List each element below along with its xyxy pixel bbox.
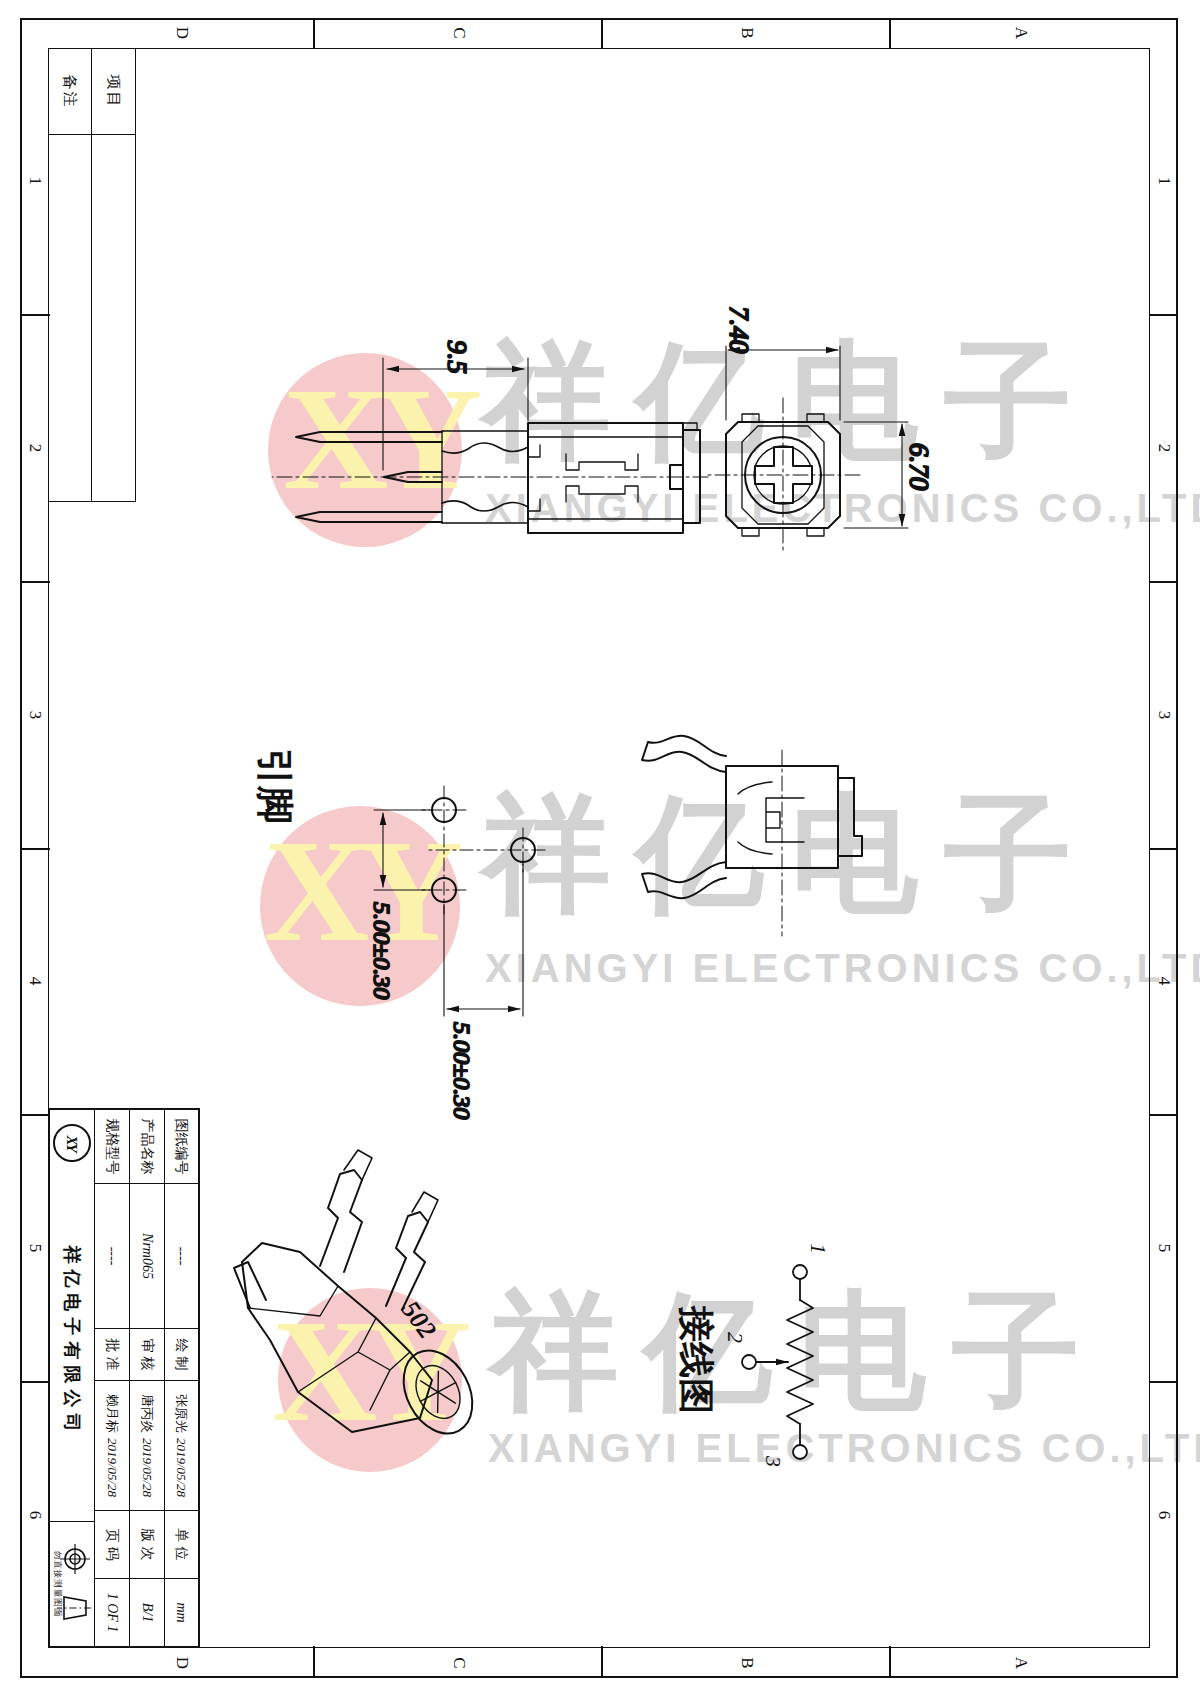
centerline <box>422 786 545 914</box>
drawing-canvas: 7.40 6.70 <box>0 0 1200 1697</box>
dim-pin-pitch-h: 5.00±0.30 <box>369 902 395 999</box>
terminal-3-label: 3 <box>761 1455 786 1467</box>
drawing-sheet-page: XY 祥亿电子 XIANGYI ELECTRONICS CO.,LTD XY 祥… <box>0 0 1200 1697</box>
side-view-drawing <box>642 736 862 936</box>
terminal-2-label: 2 <box>723 1332 748 1343</box>
dim-front-height: 9.5 <box>442 340 472 374</box>
iso-view-drawing: 502 <box>234 1150 486 1445</box>
dim-top-width: 6.70 <box>904 443 934 491</box>
wiring-diagram: 1 2 3 接线图 <box>676 1243 831 1467</box>
rotated-landscape-sheet: 1 2 3 4 5 6 1 2 3 4 5 6 A B C D A B C D … <box>0 0 1200 1697</box>
pin-layout-drawing: 5.00±0.30 5.00±0.30 引脚 <box>254 748 545 1119</box>
terminal-1-label: 1 <box>806 1243 831 1254</box>
top-view-drawing: 7.40 6.70 <box>704 306 934 552</box>
wiring-diagram-label: 接线图 <box>676 1304 717 1414</box>
pin-view-label: 引脚 <box>254 748 296 824</box>
rotor-marking: 502 <box>396 1295 442 1344</box>
dim-pin-pitch-v: 5.00±0.30 <box>449 1022 475 1119</box>
front-view-drawing: 9.5 <box>272 340 708 533</box>
dim-top-height: 7.40 <box>724 306 754 354</box>
